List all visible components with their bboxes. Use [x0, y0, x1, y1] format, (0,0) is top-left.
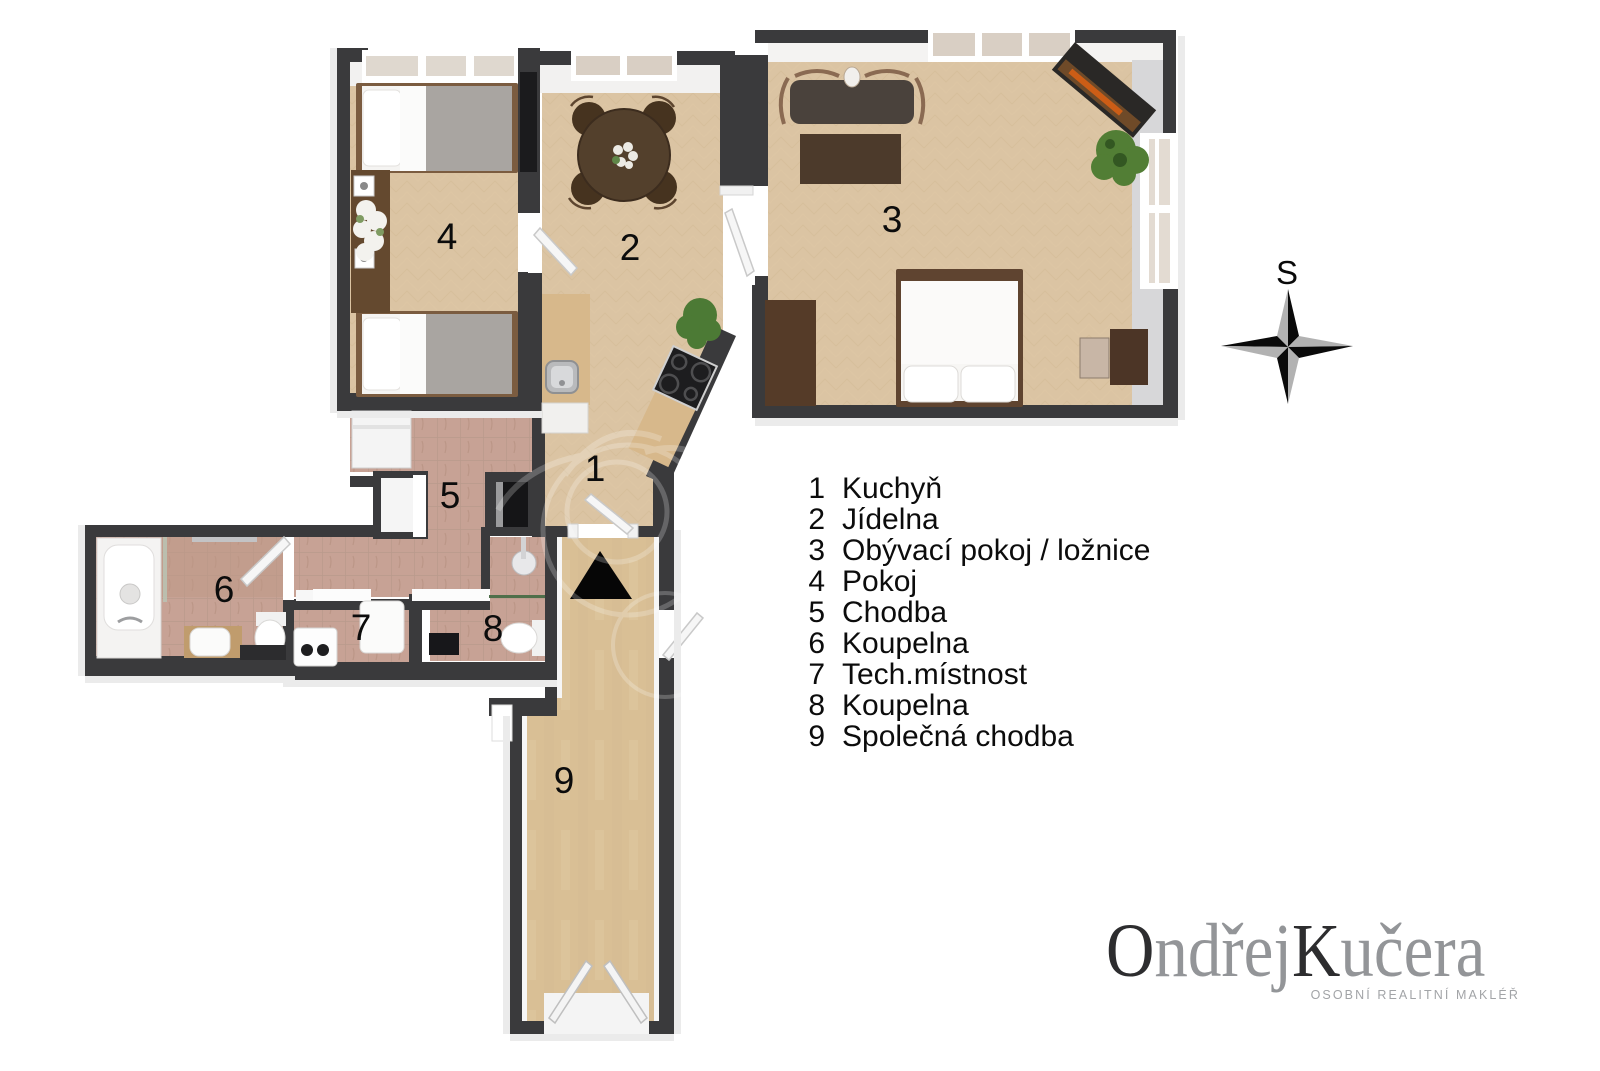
svg-text:8: 8 — [808, 689, 825, 722]
svg-text:9: 9 — [808, 720, 825, 753]
svg-text:4: 4 — [808, 565, 825, 598]
svg-text:Chodba: Chodba — [842, 596, 947, 629]
svg-text:OndřejKučera: OndřejKučera — [1106, 908, 1485, 993]
svg-text:Koupelna: Koupelna — [842, 627, 969, 660]
svg-text:7: 7 — [808, 658, 825, 691]
svg-text:9: 9 — [554, 760, 575, 801]
svg-text:OSOBNÍ REALITNÍ MAKLÉŘ: OSOBNÍ REALITNÍ MAKLÉŘ — [1311, 987, 1520, 1002]
svg-text:Kuchyň: Kuchyň — [842, 472, 942, 505]
svg-text:S: S — [1276, 254, 1298, 291]
svg-text:6: 6 — [214, 569, 235, 610]
svg-text:Jídelna: Jídelna — [842, 503, 939, 536]
svg-text:5: 5 — [808, 596, 825, 629]
svg-text:2: 2 — [620, 227, 641, 268]
svg-text:Pokoj: Pokoj — [842, 565, 917, 598]
svg-text:2: 2 — [808, 503, 825, 536]
svg-text:8: 8 — [483, 608, 504, 649]
svg-text:1: 1 — [808, 472, 825, 505]
svg-text:3: 3 — [882, 199, 903, 240]
svg-text:Obývací pokoj / ložnice: Obývací pokoj / ložnice — [842, 534, 1150, 567]
svg-text:7: 7 — [351, 607, 372, 648]
svg-text:3: 3 — [808, 534, 825, 567]
svg-text:1: 1 — [585, 448, 606, 489]
svg-text:Tech.místnost: Tech.místnost — [842, 658, 1028, 691]
svg-text:5: 5 — [440, 475, 461, 516]
svg-text:6: 6 — [808, 627, 825, 660]
svg-text:Společná chodba: Společná chodba — [842, 720, 1074, 753]
svg-text:4: 4 — [437, 216, 458, 257]
svg-text:Koupelna: Koupelna — [842, 689, 969, 722]
